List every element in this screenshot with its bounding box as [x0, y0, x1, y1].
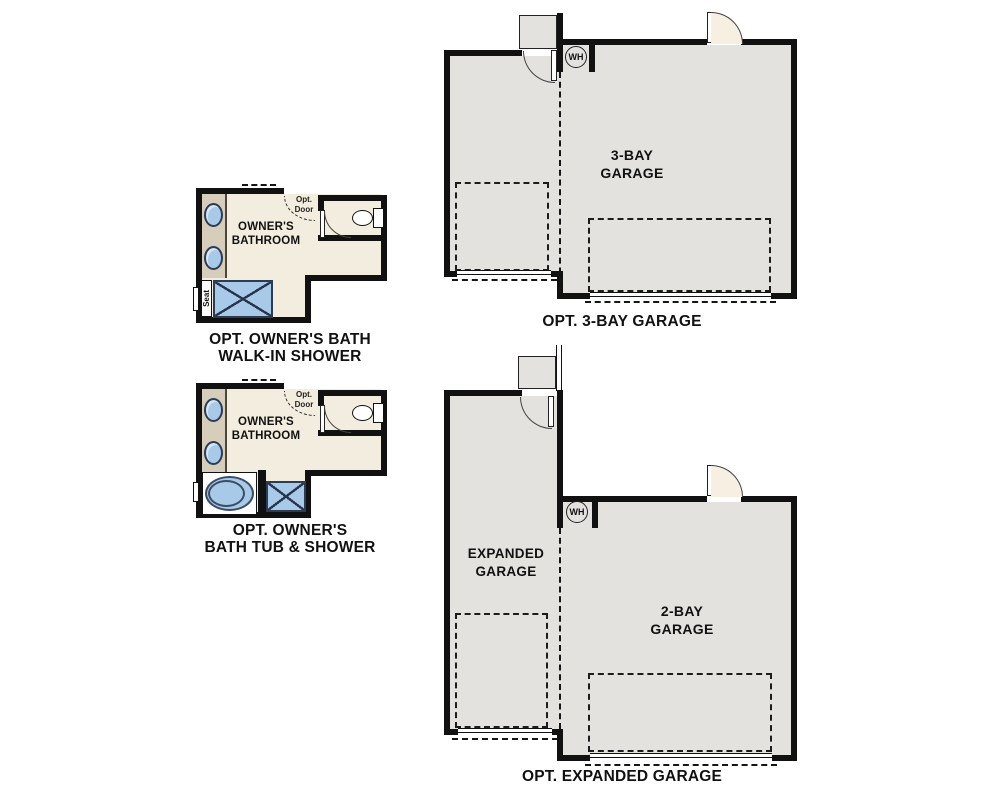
wall — [563, 496, 707, 502]
plan-caption: OPT. OWNER'S BATH TUB & SHOWER — [170, 522, 410, 556]
walk-in-shower-icon — [213, 280, 273, 318]
room-label-2-bay-garage: 2-BAY GARAGE — [622, 603, 742, 638]
garage-door-dashed-line — [452, 738, 558, 740]
garage-door-dashed-line — [585, 764, 777, 766]
wall — [557, 729, 563, 761]
garage-door-panel — [590, 292, 771, 297]
wall — [557, 390, 563, 528]
wall — [318, 390, 387, 396]
toilet-icon — [352, 210, 373, 226]
plan-caption: OPT. OWNER'S BATH WALK-IN SHOWER — [170, 331, 410, 365]
room-label-owners-bathroom: OWNER'S BATHROOM — [216, 220, 316, 248]
bathtub-inner-icon — [208, 480, 245, 507]
wall — [563, 293, 590, 299]
sink-icon — [204, 246, 223, 270]
wall — [305, 275, 387, 281]
garage-door-dashed-line — [452, 279, 557, 281]
optional-opening-dashes — [242, 184, 276, 186]
parking-stall-dashed — [455, 182, 549, 271]
bay-divider-dashed-line — [559, 72, 561, 293]
floorplan-options-sheet: Opt. Door OWNER'S BATHROOM Seat OPT. OWN… — [0, 0, 1000, 800]
parking-stall-dashed — [455, 613, 548, 728]
wall — [318, 235, 387, 241]
wall — [563, 755, 590, 761]
water-heater-icon: WH — [565, 46, 587, 68]
wall — [772, 755, 797, 761]
wall — [589, 45, 595, 72]
wall — [791, 39, 797, 299]
wall — [305, 470, 387, 476]
wall — [444, 390, 522, 396]
window — [193, 287, 199, 311]
window — [193, 482, 199, 502]
room-label-3-bay-garage: 3-BAY GARAGE — [572, 147, 692, 182]
garage-door-dashed-line — [585, 301, 776, 303]
optional-opening-dashes — [242, 379, 276, 381]
wall — [791, 496, 797, 761]
parking-stall-dashed — [588, 673, 772, 752]
wall — [258, 470, 266, 518]
garage-door-panel — [590, 753, 772, 758]
wall — [444, 729, 458, 735]
wall — [318, 430, 387, 436]
wall — [444, 50, 522, 56]
wall — [305, 275, 311, 323]
optional-door-label: Opt. Door — [286, 195, 322, 214]
wall — [563, 39, 707, 45]
shower-icon — [266, 481, 306, 512]
sink-icon — [204, 441, 223, 465]
wall — [771, 293, 797, 299]
plan-caption: OPT. 3-BAY GARAGE — [487, 313, 757, 330]
door-swing-arc — [711, 465, 743, 497]
wall — [444, 271, 457, 277]
door-swing-arc — [711, 12, 743, 44]
parking-stall-dashed — [588, 218, 771, 292]
wall — [741, 496, 797, 502]
wall — [318, 195, 387, 201]
garage-door-panel — [458, 728, 552, 733]
optional-door-label: Opt. Door — [286, 390, 322, 409]
toilet-tank-icon — [373, 403, 384, 423]
wall — [444, 50, 450, 277]
room-label-expanded-garage: EXPANDED GARAGE — [447, 545, 565, 580]
toilet-tank-icon — [373, 208, 384, 228]
wall — [741, 39, 797, 45]
toilet-icon — [352, 405, 373, 421]
wall-stub-double-line — [556, 345, 562, 391]
garage-door-panel — [457, 270, 551, 275]
room-label-owners-bathroom: OWNER'S BATHROOM — [216, 415, 316, 443]
wall — [592, 502, 598, 528]
plan-caption: OPT. EXPANDED GARAGE — [487, 768, 757, 785]
water-heater-icon: WH — [566, 501, 588, 523]
shower-seat: Seat — [201, 280, 212, 317]
door-landing — [519, 15, 557, 49]
door-landing — [518, 356, 556, 389]
